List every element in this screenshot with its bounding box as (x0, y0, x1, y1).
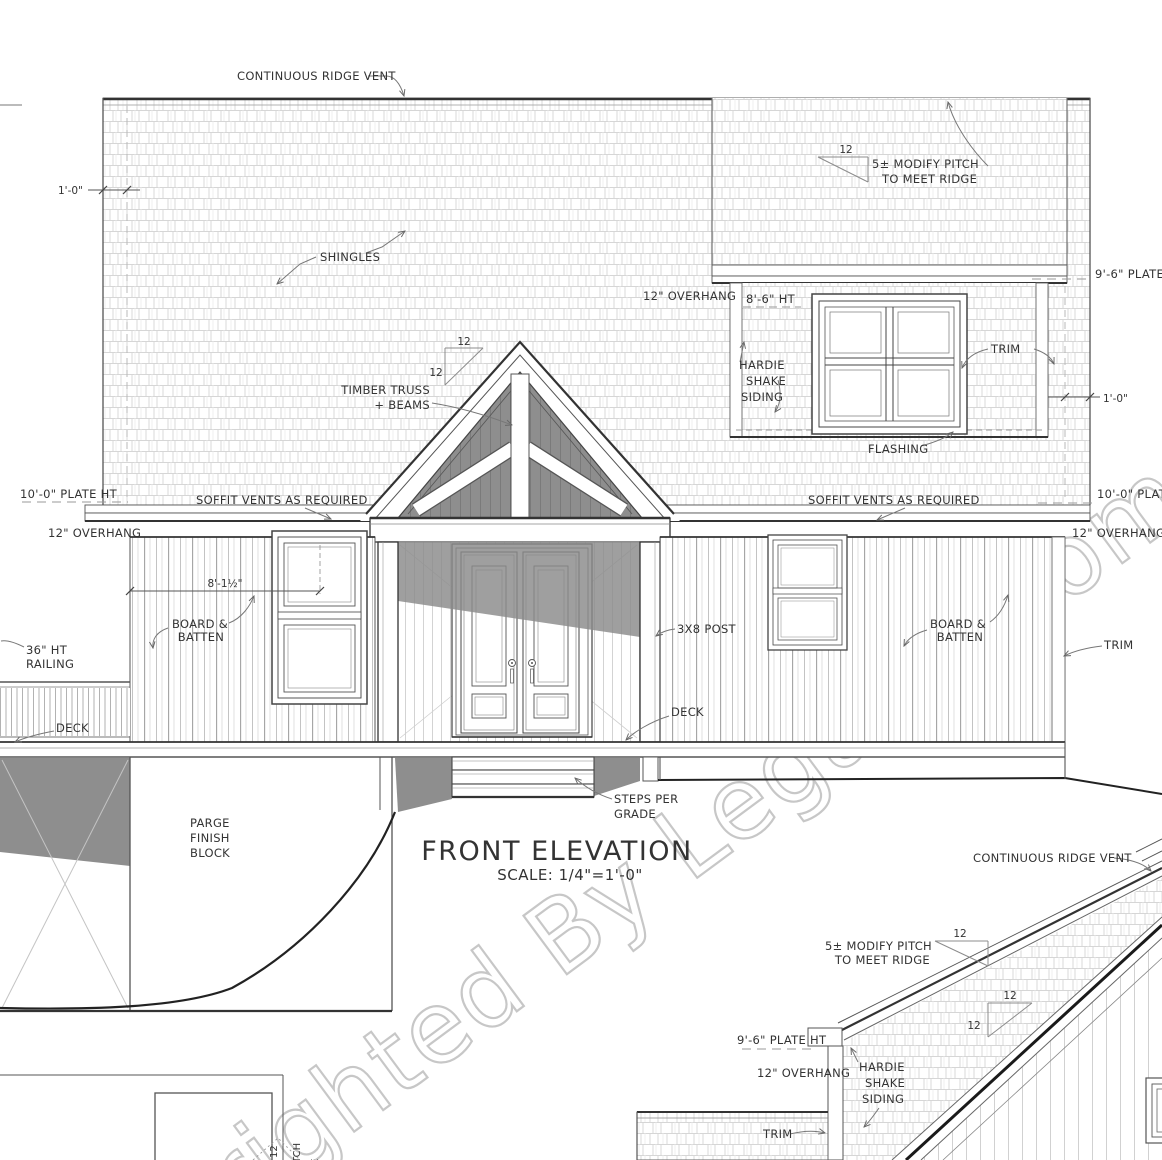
label-hardie-1: HARDIE (739, 358, 785, 372)
label-hardie-2: SHAKE (746, 374, 786, 388)
post-footing (643, 757, 658, 781)
right-window (768, 535, 847, 650)
porch-recess (378, 542, 660, 742)
lower-porch-roof (637, 1112, 828, 1160)
dormer-window (812, 294, 967, 434)
porch-post-left (378, 542, 398, 742)
label-railing-2: RAILING (26, 657, 74, 671)
corner-trim (1052, 537, 1065, 742)
truss-king-post (511, 374, 529, 518)
left-window (272, 531, 367, 704)
label-3x8-post: 3X8 POST (677, 622, 737, 636)
label-flashing: FLASHING (868, 442, 928, 456)
right-wing-wall (660, 535, 1065, 742)
front-elevation-drawing: Copyrighted By Legacy Homes (0, 0, 1162, 1160)
label-steps-2: GRADE (614, 807, 656, 821)
drawing-scale: SCALE: 1/4"=1'-0" (497, 866, 643, 884)
label-modify-pitch-1: 5± MODIFY PITCH (872, 157, 979, 171)
label-deck-left: DECK (56, 721, 89, 735)
label-ridge-vent-2: CONTINUOUS RIDGE VENT (973, 851, 1132, 865)
label-ht-8-6: 8'-6" HT (746, 292, 796, 306)
label-timber-truss-1: TIMBER TRUSS (340, 383, 430, 397)
label-overhang-left: 12" OVERHANG (48, 526, 141, 540)
label-hardie-2nd-3: SIDING (862, 1092, 904, 1106)
porch-post-right (640, 542, 660, 742)
step-shadow-right (594, 758, 640, 796)
porch-header-beam (370, 518, 670, 542)
label-plate-10-left: 10'-0" PLATE HT (20, 487, 118, 501)
label-deck-right: DECK (671, 705, 704, 719)
entry-steps (452, 757, 594, 797)
rotated-modify-pitch-1: 5± MODIFY PITCH (292, 1143, 303, 1160)
step-shadow-left (395, 758, 452, 812)
left-wing-wall (130, 531, 375, 742)
pitch-12-2nd-a: 12 (953, 928, 966, 940)
label-bb-left-2: BATTEN (178, 630, 224, 644)
label-trim-dormer: TRIM (990, 342, 1021, 356)
label-plate-9-6-2nd: 9'-6" PLATE HT (737, 1033, 827, 1047)
label-plate-10-right: 10'-0" PLATE HT (1097, 487, 1162, 501)
corner-trim-second (828, 1046, 843, 1160)
label-timber-truss-2: + BEAMS (374, 398, 430, 412)
label-shingles: SHINGLES (320, 250, 380, 264)
pitch-12-gable-side: 12 (429, 367, 442, 379)
label-soffit-right: SOFFIT VENTS AS REQUIRED (808, 493, 980, 507)
label-plate-9-6-right: 9'-6" PLATE HT (1095, 267, 1162, 281)
label-trim-right: TRIM (1103, 638, 1134, 652)
label-bb-left-1: BOARD & (172, 617, 228, 631)
label-overhang-2nd: 12" OVERHANG (757, 1066, 850, 1080)
label-parge-3: BLOCK (190, 846, 230, 860)
pitch-12-2nd-b-side: 12 (967, 1020, 980, 1032)
dim-8-1-5: 8'-1½" (207, 578, 242, 590)
label-steps-1: STEPS PER (614, 792, 678, 806)
label-railing-1: 36" HT (26, 643, 68, 657)
label-ridge-vent: CONTINUOUS RIDGE VENT (237, 69, 396, 83)
label-hardie-3: SIDING (741, 390, 783, 404)
dormer-roof (712, 98, 1067, 283)
pitch-12-dormer: 12 (839, 144, 852, 156)
elevation-sheet: Copyrighted By Legacy Homes (0, 0, 1162, 1160)
drawing-title: FRONT ELEVATION (421, 836, 693, 867)
under-deck-shadow (0, 758, 130, 866)
label-trim-2nd: TRIM (762, 1127, 793, 1141)
label-bb-right-1: BOARD & (930, 617, 986, 631)
label-modify-pitch-2: TO MEET RIDGE (881, 172, 977, 186)
dim-1-0-left: 1'-0" (58, 185, 83, 197)
pitch-12-2nd-b-top: 12 (1003, 990, 1016, 1002)
label-overhang-right: 12" OVERHANG (1072, 526, 1162, 540)
dim-1-0-right: 1'-0" (1103, 393, 1128, 405)
label-parge-1: PARGE (190, 816, 230, 830)
rotated-pitch-12: 12 (269, 1145, 280, 1158)
label-modify-pitch-2nd-2: TO MEET RIDGE (834, 953, 930, 967)
label-hardie-2nd-2: SHAKE (865, 1076, 905, 1090)
deck-band (0, 742, 1065, 757)
label-hardie-2nd-1: HARDIE (859, 1060, 905, 1074)
label-soffit-left: SOFFIT VENTS AS REQUIRED (196, 493, 368, 507)
label-bb-right-2: BATTEN (937, 630, 983, 644)
pitch-12-gable-top: 12 (457, 336, 470, 348)
second-elevation-window (1146, 1078, 1162, 1143)
label-modify-pitch-2nd-1: 5± MODIFY PITCH (825, 939, 932, 953)
second-shallow-pitch-symbol (935, 941, 988, 966)
label-overhang-dormer: 12" OVERHANG (643, 289, 736, 303)
label-parge-2: FINISH (190, 831, 230, 845)
